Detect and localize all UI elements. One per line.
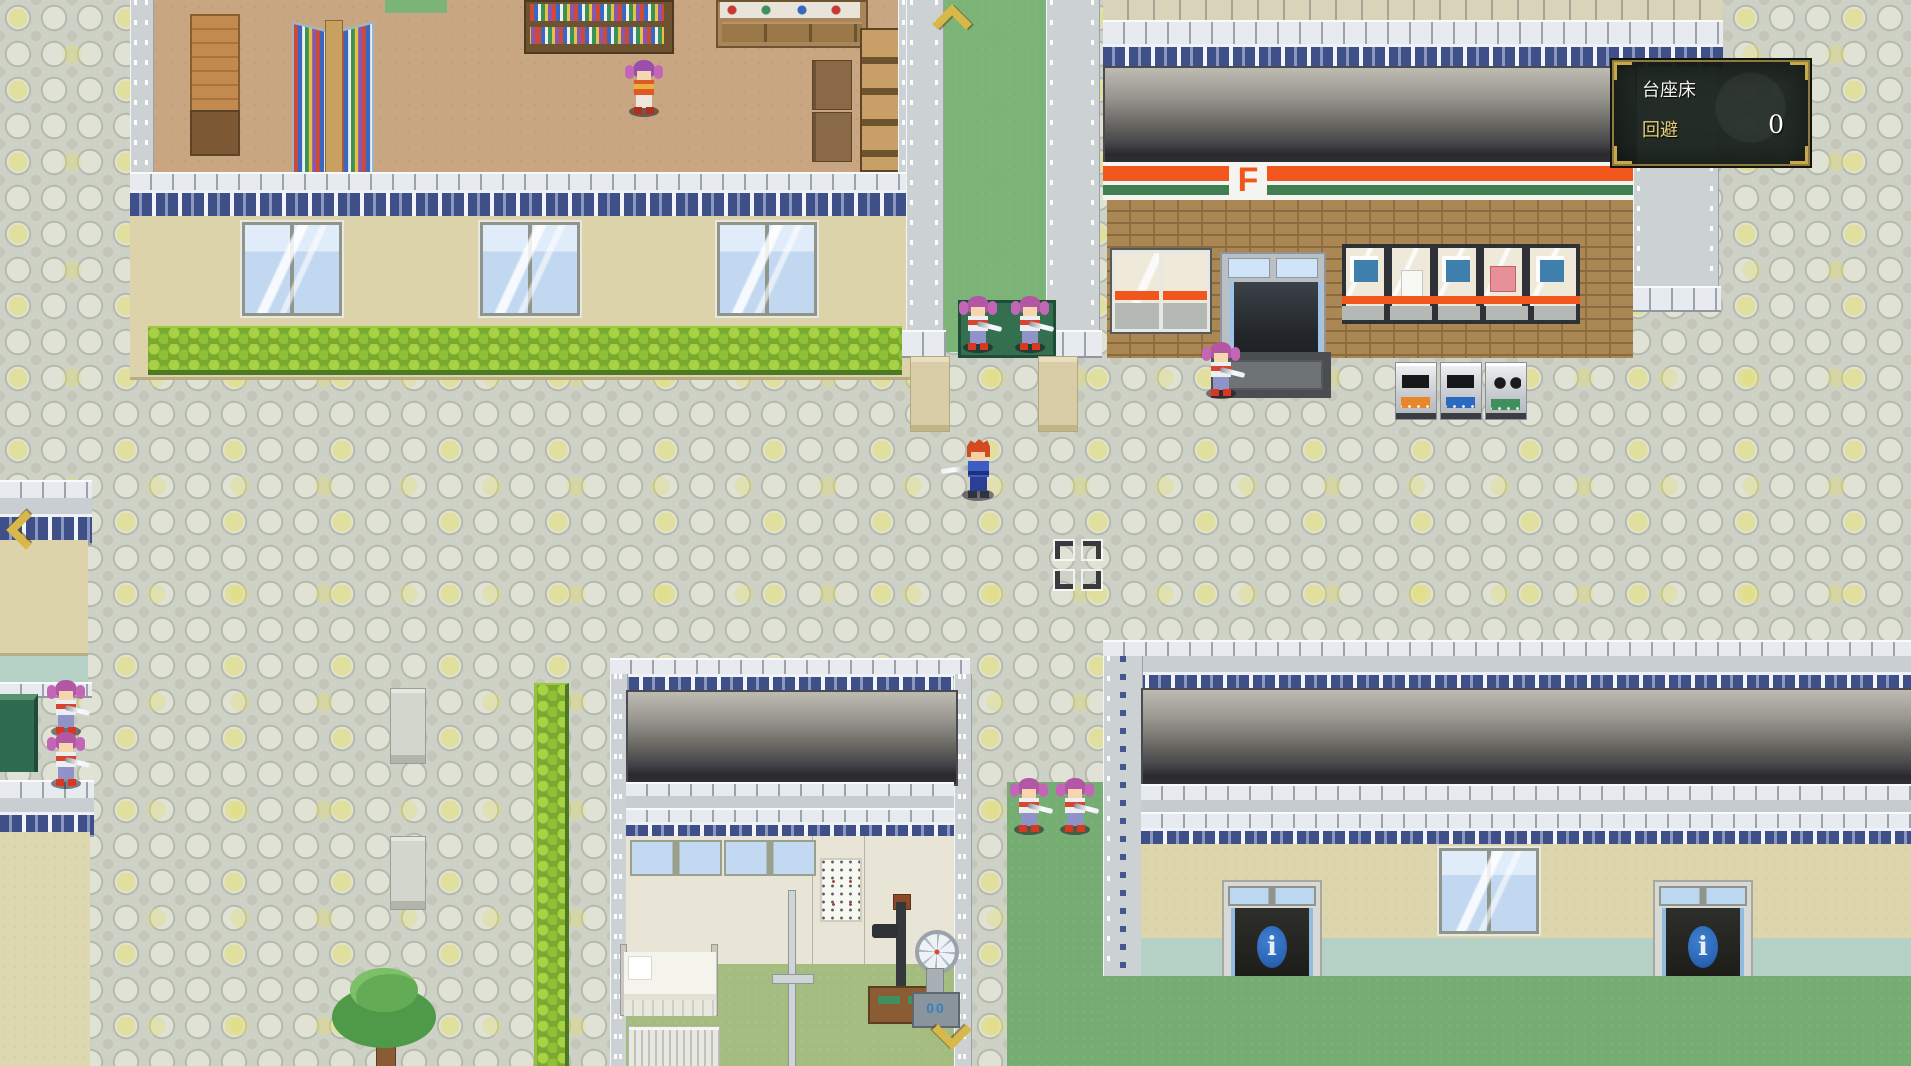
store-rooftile-band	[1103, 0, 1723, 22]
library-chair	[812, 112, 852, 162]
sprite-face	[971, 307, 985, 316]
npc-guard-girl[interactable]	[960, 294, 996, 354]
vending-base	[1486, 413, 1526, 419]
store-side-column-base	[1629, 286, 1721, 312]
sprite-torso	[968, 461, 989, 477]
cursor-corner	[1083, 541, 1101, 559]
counter-drawers	[722, 22, 862, 42]
tree-canopy-top	[350, 968, 418, 1012]
fascia-green-stripe	[1267, 185, 1633, 195]
vending-base	[1441, 413, 1481, 419]
npc-left-girl[interactable]	[48, 730, 84, 790]
counter-display	[720, 2, 860, 18]
vending-machine[interactable]	[1440, 362, 1482, 420]
evasion-stat-label: 回避	[1642, 116, 1678, 142]
sprite-torso	[634, 80, 654, 95]
radiator	[628, 1026, 720, 1066]
info-door[interactable]: i	[1653, 880, 1753, 980]
clinic-window-row	[724, 840, 816, 876]
library-wall-left	[130, 0, 154, 192]
vending-base	[1396, 413, 1436, 419]
sword-icon	[941, 465, 971, 474]
store-fascia: F	[1103, 162, 1633, 200]
fascia-orange-stripe	[1267, 166, 1633, 181]
sprite-legs	[970, 331, 986, 344]
panel-corner-ornament	[1790, 62, 1808, 80]
school-window	[717, 222, 817, 316]
left-building-band	[0, 498, 92, 514]
door-transom	[1659, 886, 1747, 906]
sprite-legs	[1067, 813, 1083, 826]
school-hedge	[148, 326, 902, 375]
panel-corner-ornament	[1790, 146, 1808, 164]
sprite-legs	[1021, 813, 1037, 826]
green-notice-board	[0, 694, 38, 772]
device-arm	[872, 924, 898, 938]
book-rack-spine	[325, 20, 343, 196]
book-rack-left-wing	[292, 22, 328, 197]
cursor-corner	[1055, 541, 1073, 559]
store-door-transom	[1228, 258, 1270, 278]
pink-poster	[1490, 266, 1516, 292]
weighing-scale: 00	[912, 930, 956, 1024]
player-character[interactable]	[956, 438, 1000, 502]
library-grass-gap	[385, 0, 447, 13]
stone-bench	[390, 688, 426, 764]
npc-library-girl[interactable]	[626, 58, 662, 118]
sprite-face	[1214, 353, 1228, 362]
right-building-roof	[1141, 688, 1911, 788]
right-building-window	[1439, 848, 1539, 934]
sprite-face	[971, 452, 985, 461]
clinic-window-row	[630, 840, 722, 876]
sprite-face	[1022, 789, 1036, 798]
info-sign-icon: i	[1257, 926, 1287, 968]
iv-stand-crossbar	[772, 974, 814, 984]
sprite-legs	[970, 477, 987, 491]
vending-label	[1446, 397, 1475, 408]
eye-chart	[820, 858, 862, 922]
sprite-legs	[636, 95, 652, 108]
fascia-green-stripe	[1103, 185, 1229, 195]
sprite-face	[1068, 789, 1082, 798]
school-window	[242, 222, 342, 316]
sprite-face	[59, 743, 73, 752]
vending-label	[1401, 397, 1430, 408]
sprite-face	[59, 691, 73, 700]
blue-poster	[1536, 256, 1564, 282]
grass-bottom-right	[1103, 976, 1911, 1066]
gate-pillar	[910, 356, 950, 432]
npc-store-girl[interactable]	[1203, 340, 1239, 400]
terrain-name-label: 台座床	[1642, 76, 1696, 102]
door-transom	[1228, 886, 1316, 906]
vending-screen	[1447, 375, 1474, 388]
store-logo: F	[1229, 162, 1267, 200]
store-door-transom	[1276, 258, 1318, 278]
library-chair	[812, 60, 852, 110]
blue-poster	[1442, 256, 1470, 282]
book-rack[interactable]	[290, 20, 376, 196]
right-building-frame-left	[1103, 656, 1143, 976]
info-sign-icon: i	[1688, 926, 1718, 968]
vertical-hedge	[534, 683, 569, 1066]
right-building-band	[1103, 656, 1911, 672]
vending-machine[interactable]	[1395, 362, 1437, 420]
library-wood-panel	[190, 14, 240, 114]
vending-ports	[1490, 373, 1521, 389]
panel-corner-ornament	[1614, 146, 1632, 164]
store-window-left	[1112, 250, 1210, 332]
store-door-opening	[1230, 282, 1322, 356]
gate-pillar	[1038, 356, 1078, 432]
bed-skirt	[624, 1000, 716, 1016]
npc-south-girl[interactable]	[1057, 776, 1093, 836]
left-building-wall	[0, 540, 88, 656]
npc-south-girl[interactable]	[1011, 776, 1047, 836]
store-awning-roof	[1103, 66, 1637, 166]
bookshelf-row-top	[530, 4, 664, 21]
sprite-legs	[58, 715, 74, 728]
clinic-ledge	[626, 796, 954, 808]
panel-corner-ornament	[1614, 62, 1632, 80]
target-cursor-icon[interactable]	[1055, 541, 1101, 589]
fascia-orange-stripe	[1103, 166, 1229, 181]
game-viewport: F	[0, 0, 1911, 1066]
evasion-stat-value: 0	[1768, 110, 1784, 139]
window-mullion	[1159, 253, 1163, 329]
sprite-legs	[1022, 331, 1038, 344]
book-rack-right-wing	[338, 22, 374, 197]
bottomleft-building-band	[0, 798, 94, 812]
vending-machine[interactable]	[1485, 362, 1527, 420]
scale-column	[926, 968, 944, 994]
school-window	[480, 222, 580, 316]
store-window-band	[1342, 244, 1580, 324]
right-building-ledge	[1141, 800, 1911, 812]
terrain-info-panel: 台座床 回避 0	[1610, 58, 1812, 168]
path-wall-right	[1046, 0, 1100, 332]
bookshelf[interactable]	[524, 0, 674, 54]
clinic-roof	[626, 690, 958, 786]
sprite-face	[1023, 307, 1037, 316]
bookshelf-row-bottom	[530, 27, 664, 44]
bed-pillow	[628, 956, 652, 980]
bottomleft-building-wall	[0, 832, 90, 1066]
vending-label	[1491, 399, 1520, 410]
info-door[interactable]: i	[1222, 880, 1322, 980]
sprite-face	[637, 71, 651, 80]
hospital-bed	[620, 944, 720, 1020]
path-wall-left-base	[902, 330, 946, 358]
band-orange-stripe	[1342, 296, 1580, 304]
stone-bench	[390, 836, 426, 910]
cursor-corner	[1055, 571, 1073, 589]
npc-left-girl[interactable]	[48, 678, 84, 738]
band-lower-gray	[1342, 306, 1580, 320]
tree	[326, 968, 442, 1066]
vending-screen	[1402, 375, 1429, 388]
cursor-corner	[1083, 571, 1101, 589]
sprite-legs	[1213, 377, 1229, 390]
shop-counter[interactable]	[716, 0, 868, 48]
path-wall-left	[906, 0, 944, 332]
sprite-legs	[58, 767, 74, 780]
blue-poster	[1350, 256, 1378, 282]
npc-guard-girl[interactable]	[1012, 294, 1048, 354]
library-wood-panel-base	[190, 110, 240, 156]
